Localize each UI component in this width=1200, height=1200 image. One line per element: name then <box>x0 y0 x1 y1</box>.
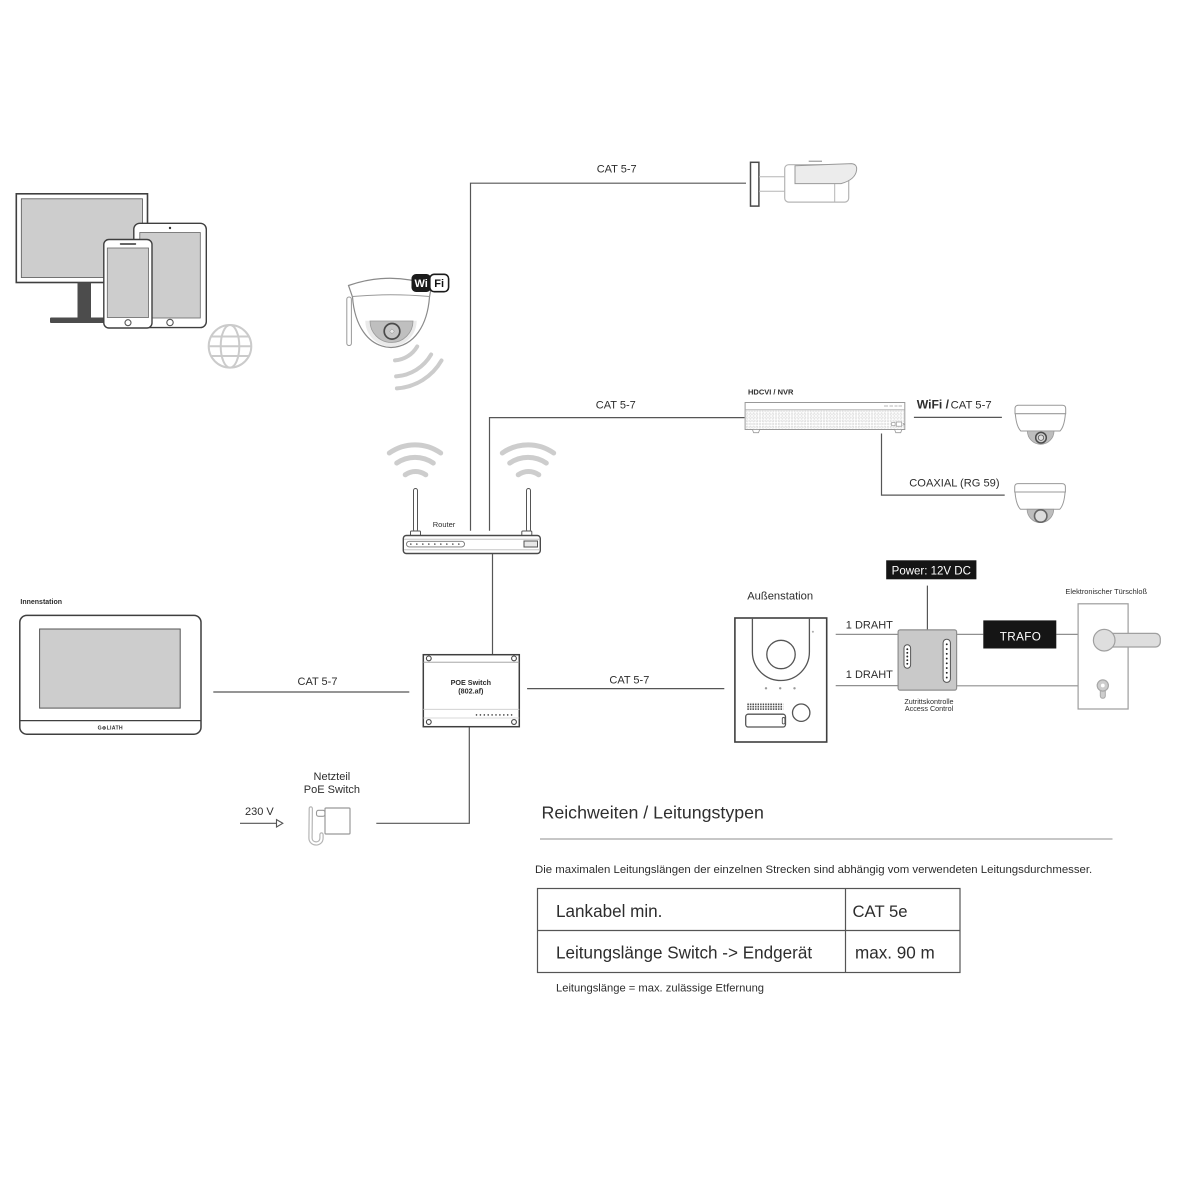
svg-text:G⊕LIATH: G⊕LIATH <box>98 726 123 732</box>
svg-text:CAT 5-7: CAT 5-7 <box>298 676 338 688</box>
svg-text:Access Control: Access Control <box>905 704 954 713</box>
svg-text:WiFi /: WiFi / <box>917 397 950 411</box>
svg-text:Elektronischer Türschloß: Elektronischer Türschloß <box>1065 587 1147 596</box>
svg-text:max. 90 m: max. 90 m <box>855 944 935 963</box>
svg-text:(802.af): (802.af) <box>458 687 484 696</box>
svg-text:Innenstation: Innenstation <box>20 599 62 606</box>
svg-text:CAT 5-7: CAT 5-7 <box>596 400 636 412</box>
svg-text:Power: 12V DC: Power: 12V DC <box>892 566 971 578</box>
svg-text:Lankabel min.: Lankabel min. <box>556 902 662 921</box>
svg-text:Router: Router <box>433 520 456 529</box>
svg-text:Die maximalen Leitungslängen d: Die maximalen Leitungslängen der einzeln… <box>535 864 1092 876</box>
svg-text:Leitungslänge Switch -> Endger: Leitungslänge Switch -> Endgerät <box>556 944 812 963</box>
svg-text:Leitungslänge = max. zulässige: Leitungslänge = max. zulässige Etfernung <box>556 983 764 995</box>
svg-text:CAT 5-7: CAT 5-7 <box>609 675 649 687</box>
svg-text:1 DRAHT: 1 DRAHT <box>846 669 893 681</box>
svg-text:Netzteil: Netzteil <box>314 771 351 783</box>
svg-text:1 DRAHT: 1 DRAHT <box>846 619 893 631</box>
svg-text:TRAFO: TRAFO <box>1000 631 1042 644</box>
svg-text:Fi: Fi <box>434 278 444 290</box>
svg-text:CAT 5-7: CAT 5-7 <box>597 164 637 176</box>
svg-text:Reichweiten / Leitungstypen: Reichweiten / Leitungstypen <box>542 803 764 823</box>
svg-text:COAXIAL (RG 59): COAXIAL (RG 59) <box>909 477 999 489</box>
svg-text:HDCVI / NVR: HDCVI / NVR <box>748 387 794 396</box>
svg-text:Wi: Wi <box>415 278 428 290</box>
svg-text:PoE Switch: PoE Switch <box>304 784 360 796</box>
svg-text:CAT 5e: CAT 5e <box>853 902 908 921</box>
svg-text:POE Switch: POE Switch <box>451 678 491 687</box>
svg-text:230 V: 230 V <box>245 806 274 818</box>
svg-text:CAT 5-7: CAT 5-7 <box>951 399 992 411</box>
svg-text:Außenstation: Außenstation <box>747 591 813 603</box>
